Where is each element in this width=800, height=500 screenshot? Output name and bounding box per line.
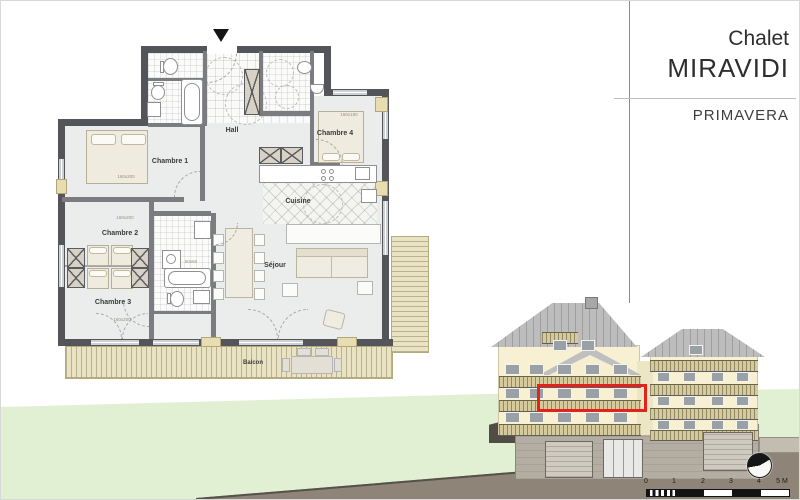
elevation-window bbox=[657, 396, 670, 406]
elevation-window bbox=[683, 396, 696, 406]
chair bbox=[213, 288, 224, 300]
outdoor-bench bbox=[282, 358, 290, 372]
entry-doors bbox=[603, 439, 643, 478]
elevation-window bbox=[505, 364, 520, 375]
interior-wall bbox=[152, 311, 212, 314]
scale-segment bbox=[732, 490, 760, 496]
kitchen-sink bbox=[355, 167, 370, 180]
toilet bbox=[163, 58, 178, 75]
chair bbox=[254, 270, 265, 282]
interior-wall bbox=[259, 111, 314, 116]
north-compass-icon bbox=[747, 453, 772, 478]
elevation-window bbox=[736, 420, 749, 430]
toilet bbox=[170, 291, 184, 307]
cooktop-burner bbox=[329, 169, 334, 174]
drawing-sheet: Chalet MIRAVIDI PRIMAVERA bbox=[0, 0, 800, 500]
window-post bbox=[375, 97, 388, 112]
scale-tick: 5 M bbox=[776, 478, 788, 485]
room-label-cuisine: Cuisine bbox=[285, 198, 310, 205]
garage-door bbox=[545, 441, 593, 478]
wardrobe bbox=[131, 248, 149, 268]
sideboard bbox=[286, 224, 381, 244]
washing-machine-drum bbox=[166, 254, 176, 264]
vanity bbox=[194, 221, 211, 239]
scale-bar bbox=[646, 489, 790, 497]
side-table bbox=[357, 281, 373, 295]
elevation-window bbox=[553, 340, 567, 351]
scale-segment bbox=[704, 490, 732, 496]
washbasin bbox=[147, 102, 161, 117]
bathtub-inner bbox=[168, 271, 206, 285]
balcony-railing bbox=[650, 408, 758, 420]
window bbox=[383, 111, 388, 139]
chalet-title-line2: MIRAVIDI bbox=[621, 53, 789, 84]
elevation-window bbox=[711, 420, 724, 430]
kitchen-appliance bbox=[361, 189, 377, 203]
garage-door bbox=[703, 432, 753, 471]
wall bbox=[58, 119, 148, 126]
apartment-highlight-box bbox=[537, 384, 647, 412]
elevation-window bbox=[613, 412, 628, 423]
elevation-window bbox=[683, 372, 696, 382]
wardrobe bbox=[67, 248, 85, 268]
chimney bbox=[585, 297, 598, 309]
toilet bbox=[297, 61, 312, 74]
pillow bbox=[91, 134, 116, 145]
elevation-window bbox=[529, 412, 544, 423]
outdoor-bench bbox=[334, 358, 342, 372]
room-label-balcon: Balcon bbox=[243, 360, 263, 366]
bed-dim-label: 160x200 bbox=[117, 174, 134, 179]
chair bbox=[213, 252, 224, 264]
interior-wall bbox=[200, 123, 205, 201]
window bbox=[239, 340, 303, 345]
room-label-chambre4: Chambre 4 bbox=[317, 130, 353, 137]
room-label-sejour: Séjour bbox=[264, 262, 286, 269]
interior-wall bbox=[149, 211, 211, 216]
interior-wall bbox=[310, 94, 314, 166]
room-label-hall: Hall bbox=[226, 127, 239, 134]
scale-segment bbox=[647, 490, 675, 496]
vanity bbox=[193, 290, 210, 304]
side-terrace-deck bbox=[391, 236, 429, 353]
balcony-railing bbox=[650, 360, 758, 372]
neighbor-wall bbox=[759, 437, 800, 453]
wall bbox=[58, 119, 65, 346]
window bbox=[59, 245, 64, 287]
elevation-window bbox=[585, 364, 600, 375]
chair bbox=[254, 234, 265, 246]
bed-dim-label: 160x200 bbox=[116, 215, 133, 220]
window-post bbox=[201, 337, 221, 347]
balcony-railing bbox=[650, 384, 758, 396]
elevation-window bbox=[557, 364, 572, 375]
elevation-window bbox=[613, 364, 628, 375]
chalet-title-line1: Chalet bbox=[621, 27, 789, 51]
elevation-window bbox=[657, 372, 670, 382]
elevation-window bbox=[529, 364, 544, 375]
pillow bbox=[89, 270, 107, 277]
chair bbox=[213, 270, 224, 282]
outdoor-chair bbox=[297, 348, 311, 356]
window bbox=[383, 201, 388, 255]
wardrobe bbox=[131, 268, 149, 288]
pillow bbox=[342, 153, 360, 161]
wardrobe bbox=[67, 268, 85, 288]
pillow bbox=[89, 247, 107, 254]
elevation-window bbox=[683, 420, 696, 430]
sofa-seam bbox=[331, 256, 332, 277]
elevation-window bbox=[557, 412, 572, 423]
interior-wall bbox=[149, 201, 154, 339]
elevation-window bbox=[689, 345, 703, 355]
window-post bbox=[56, 179, 67, 194]
balcony-deck bbox=[65, 346, 393, 379]
elevation-window bbox=[736, 372, 749, 382]
window-post bbox=[337, 337, 357, 347]
outdoor-chair bbox=[315, 348, 329, 356]
appliance-dim-label: 60x60 bbox=[185, 259, 197, 264]
cooktop-burner bbox=[321, 176, 326, 181]
bathtub-inner bbox=[184, 83, 200, 121]
room-label-chambre3: Chambre 3 bbox=[95, 299, 131, 306]
entrance-arrow-icon bbox=[213, 29, 229, 42]
balcony-railing bbox=[499, 424, 641, 436]
toilet bbox=[151, 85, 165, 100]
door-swing-circle bbox=[266, 59, 294, 87]
unit-name: PRIMAVERA bbox=[621, 107, 789, 124]
kitchen-cabinet bbox=[281, 147, 303, 164]
scale-segment bbox=[675, 490, 703, 496]
outdoor-table bbox=[291, 356, 333, 374]
elevation-window bbox=[581, 340, 595, 351]
window bbox=[153, 340, 199, 345]
cooktop-burner bbox=[329, 176, 334, 181]
room-label-chambre1: Chambre 1 bbox=[152, 158, 188, 165]
title-rule bbox=[614, 98, 796, 99]
bed-dim-label: 160x190 bbox=[340, 112, 357, 117]
window bbox=[91, 340, 139, 345]
elevation-roof-right bbox=[641, 329, 765, 357]
scale-tick: 4 bbox=[757, 478, 761, 485]
door-swing-circle bbox=[275, 85, 299, 109]
interior-wall bbox=[62, 197, 184, 202]
scale-tick: 2 bbox=[701, 478, 705, 485]
pillow bbox=[113, 270, 131, 277]
scale-tick: 1 bbox=[672, 478, 676, 485]
pillow bbox=[113, 247, 131, 254]
elevation-window bbox=[585, 412, 600, 423]
window bbox=[333, 90, 367, 95]
sofa-back bbox=[297, 249, 367, 257]
scale-segment bbox=[761, 490, 789, 496]
room-label-chambre2: Chambre 2 bbox=[102, 230, 138, 237]
elevation-window bbox=[505, 412, 520, 423]
elevation-window bbox=[736, 396, 749, 406]
chair bbox=[254, 288, 265, 300]
kitchen-cabinet bbox=[259, 147, 281, 164]
scale-tick: 0 bbox=[644, 478, 648, 485]
elevation-window bbox=[711, 372, 724, 382]
wardrobe bbox=[244, 69, 260, 115]
pillow bbox=[121, 134, 146, 145]
washbasin bbox=[310, 84, 324, 94]
elevation-window bbox=[505, 388, 520, 399]
cooktop-burner bbox=[321, 169, 326, 174]
elevation-window bbox=[711, 396, 724, 406]
scale-tick: 3 bbox=[729, 478, 733, 485]
elevation-window bbox=[657, 420, 670, 430]
side-table bbox=[282, 283, 298, 297]
